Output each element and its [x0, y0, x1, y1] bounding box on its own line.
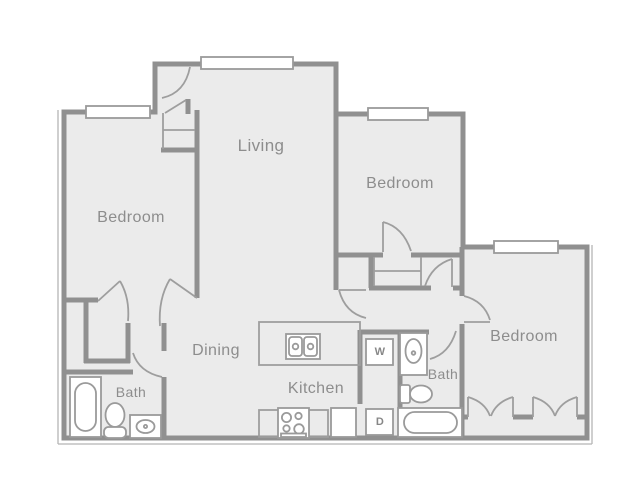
floor-plan: Living Bedroom Bedroom Bedroom Dining Ki…	[0, 0, 639, 504]
stove-icon	[278, 408, 309, 438]
floor-plan-drawing	[0, 0, 639, 504]
room-label-living: Living	[238, 136, 285, 156]
bathtub-right-icon	[398, 408, 462, 437]
bathtub-left-icon	[70, 377, 101, 437]
room-label-bath-right: Bath	[428, 366, 458, 382]
window-bedroom-bottom-right	[494, 241, 558, 253]
toilet-left-icon	[104, 403, 126, 438]
kitchen-sink-icon	[286, 334, 320, 359]
room-label-bedroom-top-right: Bedroom	[366, 175, 434, 193]
vanity-right-icon	[400, 333, 427, 375]
room-label-bedroom-left: Bedroom	[97, 209, 165, 227]
vanity-left-icon	[130, 415, 161, 438]
window-bedroom-top-right	[368, 108, 428, 120]
window-bedroom-left	[86, 106, 150, 118]
window-living	[201, 57, 293, 69]
washer-label: W	[375, 346, 386, 358]
fridge-icon	[331, 408, 356, 437]
room-label-bedroom-bottom-right: Bedroom	[490, 328, 558, 346]
dryer-label: D	[376, 416, 384, 428]
room-label-bath-left: Bath	[116, 384, 146, 400]
room-label-dining: Dining	[192, 342, 240, 360]
room-label-kitchen: Kitchen	[288, 380, 344, 398]
toilet-right-icon	[400, 385, 432, 403]
